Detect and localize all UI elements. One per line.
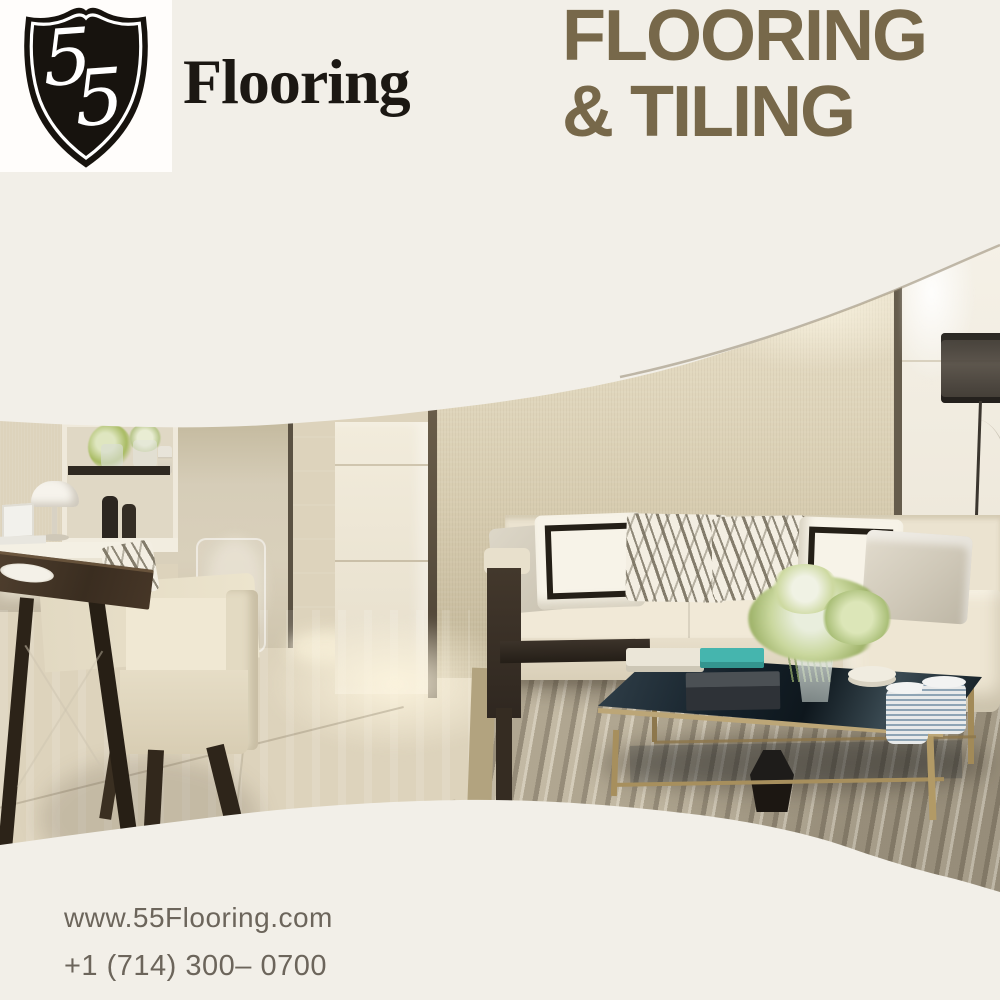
website-text: www.55Flooring.com	[64, 902, 333, 934]
phone-text: +1 (714) 300– 0700	[64, 950, 327, 983]
teal-tray	[700, 648, 764, 668]
dining-chair-front	[120, 670, 248, 754]
coaster-stack-2-top	[922, 676, 966, 688]
coaster-stack-2	[922, 682, 966, 734]
dark-doorway	[293, 422, 335, 642]
shelf-board	[68, 466, 170, 475]
living-room-photo	[0, 238, 1000, 904]
decor-box	[686, 671, 781, 711]
flower-bouquet-green	[822, 590, 892, 645]
shelf-figurine	[102, 496, 118, 540]
dish-stack	[848, 666, 896, 682]
floor-lamp-shade	[941, 333, 1000, 403]
serving-tray	[626, 648, 704, 672]
logo-box: 5 5	[0, 0, 172, 172]
sofa-leg	[496, 708, 512, 830]
wall-light-glow	[690, 274, 900, 374]
laptop-base	[0, 535, 46, 545]
shield-55-icon: 5 5	[8, 2, 164, 170]
panel-seam-2	[335, 560, 428, 562]
mushroom-lamp-stem	[52, 506, 57, 536]
panel-seam	[335, 464, 428, 466]
logo-five-2: 5	[72, 52, 127, 145]
headline-line2: & TILING	[562, 74, 926, 150]
shelf-figurine-2	[122, 504, 136, 540]
laptop	[2, 503, 34, 539]
headline: FLOORING & TILING	[562, 0, 926, 150]
headline-line1: FLOORING	[562, 0, 926, 74]
brand-name: Flooring	[183, 50, 410, 114]
flyer-page: 5 5 Flooring FLOORING & TILING BOOK NOW	[0, 0, 1000, 1000]
